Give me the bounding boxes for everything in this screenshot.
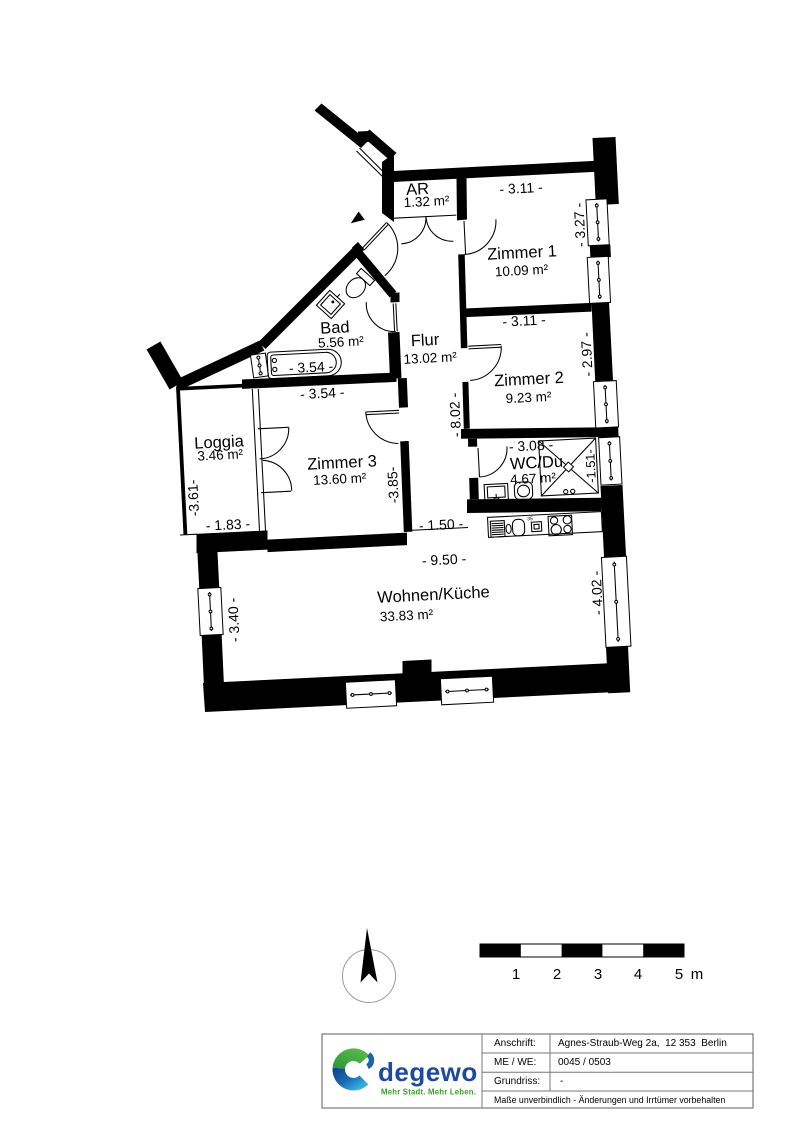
svg-text:Mehr Stadt. Mehr Leben.: Mehr Stadt. Mehr Leben.	[381, 1088, 476, 1097]
svg-text:- 3.08 -: - 3.08 -	[508, 436, 553, 454]
svg-text:5.56 m²: 5.56 m²	[318, 333, 365, 350]
svg-text:-1.51-: -1.51-	[582, 449, 599, 483]
svg-text:-3.85-: -3.85-	[384, 466, 402, 504]
svg-text:- 3.40 -: - 3.40 -	[224, 597, 242, 642]
svg-text:- 1.50 -: - 1.50 -	[418, 515, 463, 533]
svg-text:- 3.27 -: - 3.27 -	[570, 202, 588, 247]
svg-text:0045 / 0503: 0045 / 0503	[558, 1057, 611, 1068]
svg-text:Agnes-Straub-Weg 2a, 12 353: Agnes-Straub-Weg 2a, 12 353 Berlin	[558, 1038, 727, 1049]
svg-text:Anschrift:: Anschrift:	[494, 1038, 536, 1049]
svg-text:- 3.54 -: - 3.54 -	[288, 358, 333, 376]
svg-text:Grundriss:: Grundriss:	[494, 1076, 540, 1087]
svg-text:5: 5	[675, 966, 683, 983]
svg-text:Zimmer 1: Zimmer 1	[487, 242, 557, 264]
svg-text:3: 3	[594, 966, 602, 983]
svg-text:ME / WE:: ME / WE:	[494, 1057, 536, 1068]
svg-text:- 9.50 -: - 9.50 -	[421, 550, 466, 568]
svg-text:13.02 m²: 13.02 m²	[403, 349, 457, 367]
svg-text:- 3.54 -: - 3.54 -	[300, 384, 345, 402]
svg-text:- 1.83 -: - 1.83 -	[205, 515, 250, 533]
svg-text:10.09 m²: 10.09 m²	[495, 262, 549, 280]
svg-text:3.46 m²: 3.46 m²	[197, 446, 244, 463]
svg-text:-: -	[560, 1076, 563, 1087]
svg-text:- 8.02 -: - 8.02 -	[446, 392, 464, 437]
svg-text:- 4.02 -: - 4.02 -	[588, 570, 606, 615]
svg-text:Zimmer 2: Zimmer 2	[494, 369, 564, 391]
svg-text:- 3.11 -: - 3.11 -	[502, 311, 546, 329]
svg-text:4: 4	[634, 966, 642, 983]
svg-text:9.23 m²: 9.23 m²	[505, 389, 552, 406]
svg-text:35: 35	[527, 516, 533, 522]
svg-text:m: m	[691, 966, 704, 983]
svg-text:-3.61-: -3.61-	[184, 479, 202, 517]
svg-text:- 3.11 -: - 3.11 -	[499, 179, 543, 197]
svg-text:13.60 m²: 13.60 m²	[313, 470, 367, 488]
svg-text:Flur: Flur	[410, 331, 440, 350]
svg-text:Wohnen/Küche: Wohnen/Küche	[377, 583, 490, 607]
svg-text:1: 1	[512, 966, 520, 983]
svg-text:2: 2	[553, 966, 561, 983]
svg-text:4.67 m²: 4.67 m²	[510, 470, 557, 487]
svg-text:1.32 m²: 1.32 m²	[403, 193, 450, 210]
svg-text:33.83 m²: 33.83 m²	[380, 607, 434, 625]
svg-text:- 2.97 -: - 2.97 -	[577, 332, 595, 377]
svg-text:Maße unverbindlich - Änderunge: Maße unverbindlich - Änderungen und Irrt…	[494, 1095, 725, 1105]
svg-text:degewo: degewo	[378, 1057, 478, 1087]
